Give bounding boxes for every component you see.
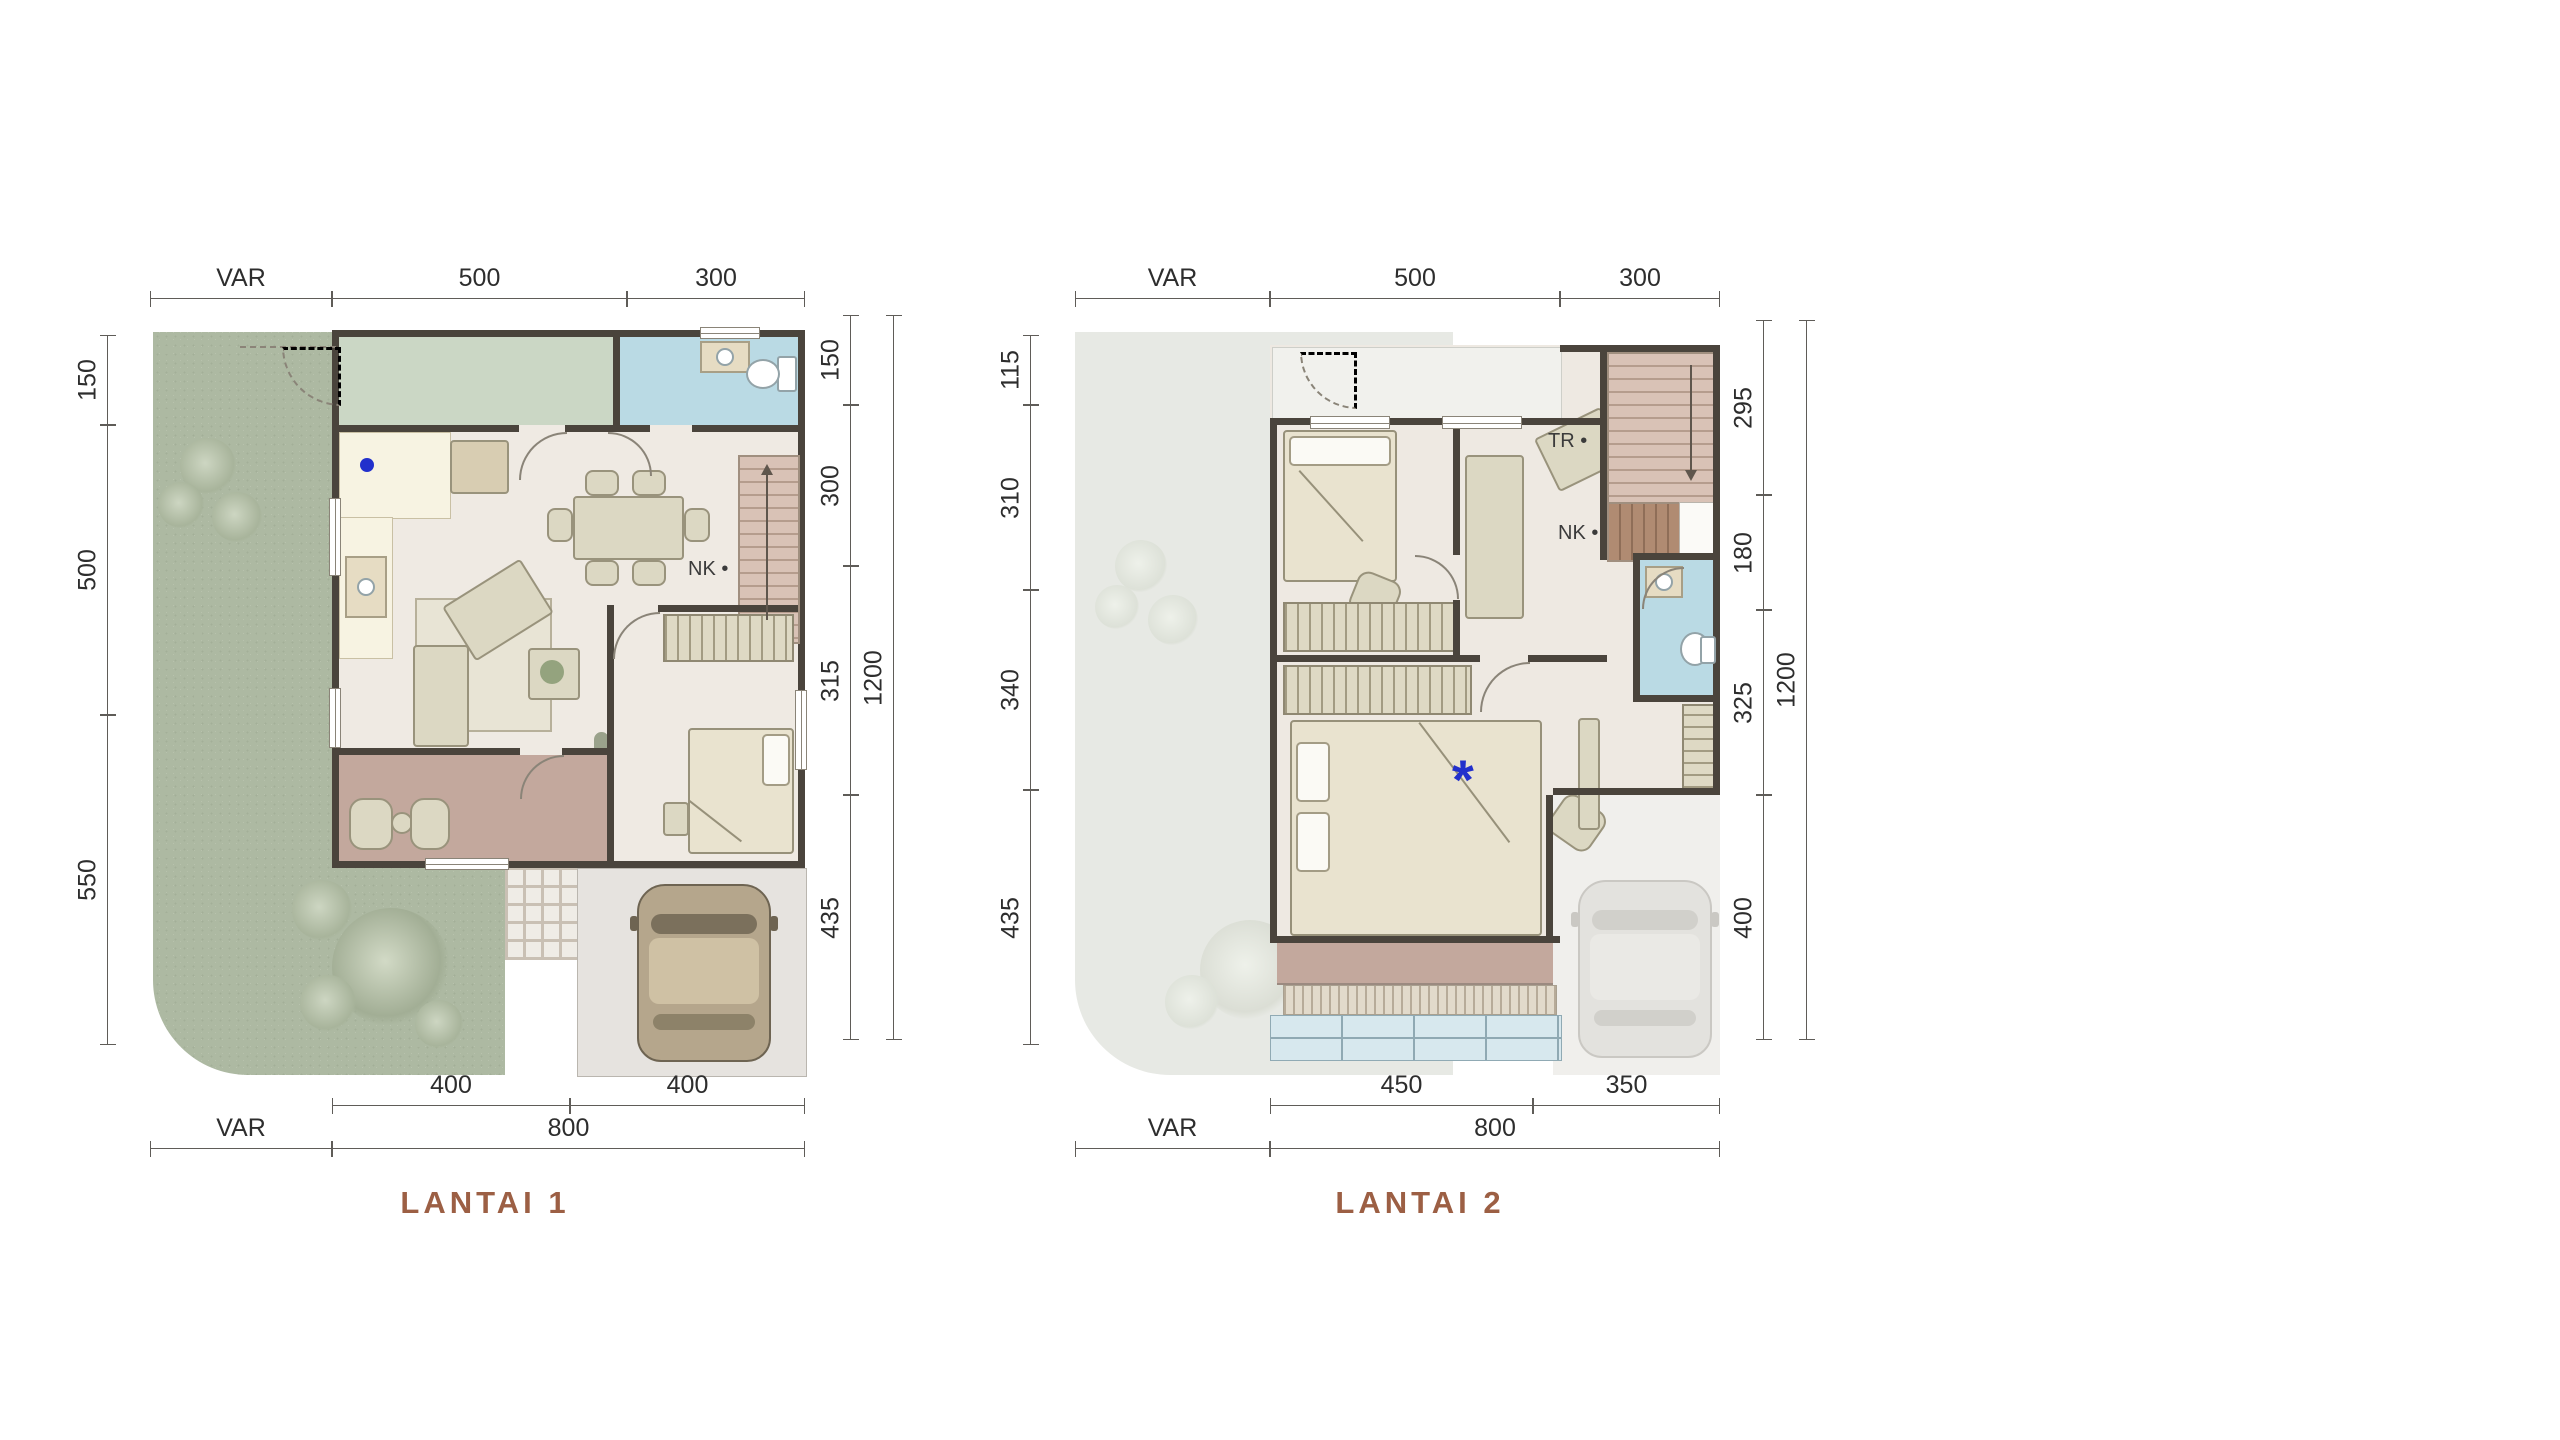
window-band xyxy=(1270,1015,1562,1061)
wall xyxy=(1560,345,1720,352)
chair xyxy=(585,560,619,586)
car-mirror xyxy=(1571,912,1579,927)
shrub xyxy=(292,880,352,940)
sofa xyxy=(1465,455,1524,619)
dim-right: 325 xyxy=(1763,610,1764,795)
window xyxy=(425,858,509,870)
kitchen-island xyxy=(450,440,509,494)
car-mirror xyxy=(1711,912,1719,927)
dim-right: 315 xyxy=(850,566,851,795)
shrub-faded xyxy=(1148,595,1198,645)
wall xyxy=(1600,425,1607,560)
wall xyxy=(607,605,614,868)
toilet-tank xyxy=(777,356,797,392)
wall xyxy=(692,425,798,432)
wall xyxy=(620,425,650,432)
shrub-faded xyxy=(1115,540,1167,592)
wall xyxy=(1600,345,1607,425)
shrub xyxy=(212,492,262,542)
wardrobe xyxy=(1682,704,1716,790)
stove-marker xyxy=(360,458,374,472)
dim-right: 300 xyxy=(850,405,851,566)
stair-landing xyxy=(1679,502,1715,560)
dresser xyxy=(1578,718,1600,830)
patio-chair xyxy=(349,798,393,850)
shrub xyxy=(158,482,204,528)
car-rear-window xyxy=(1594,1010,1696,1026)
car-windshield xyxy=(1592,910,1698,930)
nightstand xyxy=(663,802,689,836)
wall xyxy=(562,748,607,755)
wall xyxy=(613,337,620,432)
chair xyxy=(547,508,573,542)
pillow xyxy=(762,734,790,786)
wall xyxy=(1277,655,1480,662)
dim-right: 400 xyxy=(1763,795,1764,1040)
wall xyxy=(1453,600,1460,655)
dim-left: 435 xyxy=(1030,790,1031,1045)
dim-bottom: 800 xyxy=(332,1148,805,1149)
dim-right: 295 xyxy=(1763,320,1764,495)
window xyxy=(329,498,341,576)
stairs-label: NK • xyxy=(1558,522,1598,545)
wall xyxy=(1388,418,1442,425)
note-asterisk: * xyxy=(1452,752,1474,808)
floor2-title: LANTAI 2 xyxy=(1270,1185,1570,1221)
floor1-title: LANTAI 1 xyxy=(335,1185,635,1221)
window xyxy=(329,688,341,748)
dim-right-total: 1200 xyxy=(893,315,894,1040)
pillow xyxy=(1289,436,1391,466)
wall xyxy=(1277,418,1310,425)
kitchen-sink xyxy=(345,556,387,618)
paving-grid xyxy=(505,855,577,960)
window xyxy=(1442,416,1522,429)
chair xyxy=(684,508,710,542)
floorplan-sheet: NK • VAR 500 300 150 500 550 150 300 xyxy=(0,0,2560,1440)
dim-top: VAR xyxy=(150,298,332,299)
dim-right: 435 xyxy=(850,795,851,1040)
wall xyxy=(1528,655,1607,662)
wall xyxy=(1553,788,1720,795)
stairs-label-text: NK xyxy=(688,558,716,580)
dining-table xyxy=(573,496,684,560)
dim-right-total: 1200 xyxy=(1806,320,1807,1040)
car-roof xyxy=(1590,934,1700,1000)
wall xyxy=(1633,553,1720,560)
dim-top: VAR xyxy=(1075,298,1270,299)
stairs-label: NK • xyxy=(688,558,728,581)
car xyxy=(637,884,771,1062)
stairs-direction-arrow xyxy=(1690,365,1692,475)
balcony-floor xyxy=(1277,943,1553,985)
dim-right: 180 xyxy=(1763,495,1764,610)
window xyxy=(700,327,760,339)
pillow xyxy=(1296,742,1330,802)
wall xyxy=(1546,795,1553,943)
wall xyxy=(1270,936,1560,943)
dim-top: 300 xyxy=(627,298,805,299)
toilet-tank xyxy=(1700,636,1716,664)
wall xyxy=(1633,695,1720,702)
dim-bottom: 400 xyxy=(332,1105,570,1106)
bathroom-sink xyxy=(700,341,750,373)
car-roof xyxy=(649,938,759,1004)
window xyxy=(795,690,807,770)
dim-bottom: 800 xyxy=(1270,1148,1720,1149)
shrub xyxy=(300,975,356,1031)
toilet-bowl xyxy=(746,359,780,389)
dim-bottom: 450 xyxy=(1270,1105,1533,1106)
plant xyxy=(540,660,564,684)
stairs-label: TR • xyxy=(1548,430,1587,453)
wall xyxy=(1520,418,1607,425)
wall xyxy=(339,748,520,755)
shrub-faded xyxy=(1095,585,1139,629)
stairs-direction-arrow xyxy=(766,470,768,620)
room-terrace-green xyxy=(339,337,613,425)
wall xyxy=(1713,345,1720,795)
car-windshield xyxy=(651,914,757,934)
dim-top: 300 xyxy=(1560,298,1720,299)
dim-bottom: 400 xyxy=(570,1105,805,1106)
car-mirror xyxy=(630,916,638,931)
shrub xyxy=(415,1000,463,1048)
dim-right: 150 xyxy=(850,315,851,405)
patio-chair xyxy=(410,798,450,850)
dim-left: 340 xyxy=(1030,590,1031,790)
wall xyxy=(1270,418,1277,943)
wall xyxy=(339,425,519,432)
dim-top: 500 xyxy=(1270,298,1560,299)
wardrobe xyxy=(1283,665,1472,715)
dim-bottom: VAR xyxy=(150,1148,332,1149)
dim-bottom: VAR xyxy=(1075,1148,1270,1149)
wardrobe xyxy=(1283,602,1457,652)
dim-left: 150 xyxy=(107,335,108,425)
staircase xyxy=(1607,352,1717,506)
info-panel: 8X12 PREMIUM 1 HOOK ATTIC LT :VAR m² LB … xyxy=(1960,0,2560,1440)
wall xyxy=(565,425,620,432)
dim-left: 500 xyxy=(107,425,108,715)
window xyxy=(1310,416,1390,429)
car-faded xyxy=(1578,880,1712,1058)
car-rear-window xyxy=(653,1014,755,1030)
kitchen-counter xyxy=(339,432,451,519)
wall xyxy=(658,605,798,612)
car-mirror xyxy=(770,916,778,931)
dim-bottom: 350 xyxy=(1533,1105,1720,1106)
wall xyxy=(1453,425,1460,555)
canopy-roof xyxy=(1283,985,1557,1015)
shrub-faded xyxy=(1165,975,1219,1029)
dim-left: 115 xyxy=(1030,335,1031,405)
wardrobe xyxy=(663,614,794,662)
sofa xyxy=(413,645,469,747)
pillow xyxy=(1296,812,1330,872)
dim-left: 550 xyxy=(107,715,108,1045)
chair xyxy=(632,560,666,586)
wall xyxy=(1633,560,1640,695)
dim-top: 500 xyxy=(332,298,627,299)
dim-left: 310 xyxy=(1030,405,1031,590)
